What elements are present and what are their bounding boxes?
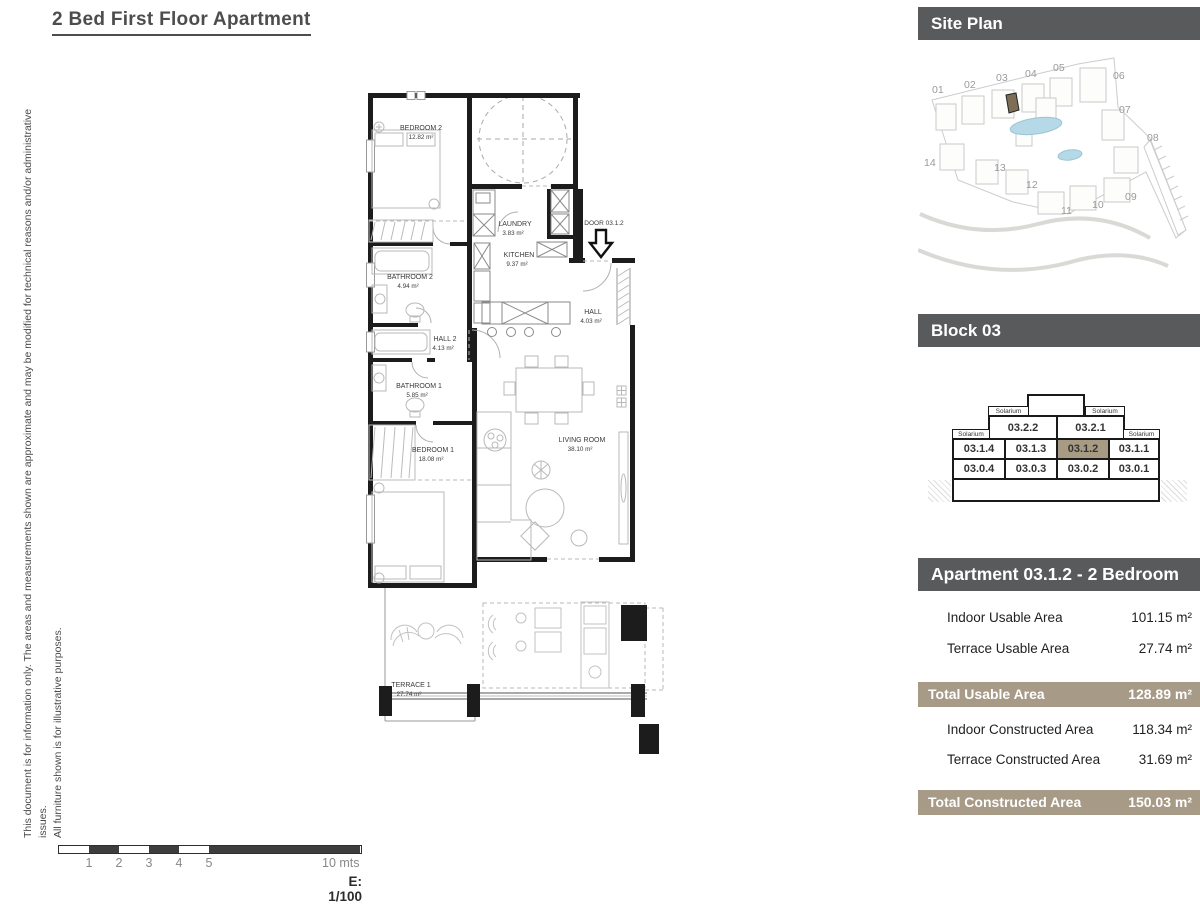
label-kitchen: KITCHEN xyxy=(504,252,535,259)
total-constructed-label: Total Constructed Area xyxy=(928,794,1081,810)
svg-text:07: 07 xyxy=(1119,104,1131,116)
walls xyxy=(368,93,635,588)
area-row-terrace-usable: Terrace Usable Area 27.74 m² xyxy=(918,641,1192,661)
block03-unit-0302: 03.0.2 xyxy=(1056,458,1110,480)
svg-text:38.10 m²: 38.10 m² xyxy=(568,446,593,453)
block03-unit-0313: 03.1.3 xyxy=(1004,438,1058,460)
scale-seg xyxy=(89,846,119,853)
scale-tick-2: 2 xyxy=(116,856,123,870)
total-usable-bar: 128.89 m² Total Usable Area xyxy=(918,682,1200,707)
block03-base xyxy=(952,478,1160,502)
disclaimer-line-1: This document is for information only. T… xyxy=(21,86,51,838)
site-plan-map: 01 02 03 04 05 06 07 08 09 10 11 12 13 1… xyxy=(918,52,1200,302)
label-hall2: HALL 2 xyxy=(433,336,456,343)
disclaimer-vertical-text: This document is for information only. T… xyxy=(21,86,67,838)
svg-text:03: 03 xyxy=(996,72,1008,84)
terrace-furniture xyxy=(391,602,609,688)
svg-text:18.08 m²: 18.08 m² xyxy=(419,456,444,463)
svg-text:05: 05 xyxy=(1053,62,1065,74)
svg-text:02: 02 xyxy=(964,79,976,91)
scale-tick-4: 4 xyxy=(176,856,183,870)
scale-tick-3: 3 xyxy=(146,856,153,870)
svg-text:08: 08 xyxy=(1147,132,1159,144)
ground-hatch-right xyxy=(1161,480,1187,502)
floor-plan: BEDROOM 2 12.82 m² LAUNDRY 3.83 m² KITCH… xyxy=(355,80,665,760)
ground-hatch-left xyxy=(928,480,951,502)
label-living-room: LIVING ROOM xyxy=(559,437,606,444)
area-label: Indoor Constructed Area xyxy=(947,722,1093,737)
area-label: Terrace Usable Area xyxy=(947,641,1069,656)
block03-unit-0322: 03.2.2 xyxy=(988,415,1058,440)
svg-text:04: 04 xyxy=(1025,68,1037,80)
block03-tower xyxy=(1027,394,1085,417)
apartment-header: Apartment 03.1.2 - 2 Bedroom xyxy=(918,558,1200,591)
svg-text:10: 10 xyxy=(1092,199,1104,211)
svg-text:11: 11 xyxy=(1061,205,1072,217)
svg-text:3.83 m²: 3.83 m² xyxy=(502,230,523,237)
svg-text:01: 01 xyxy=(932,84,944,96)
label-terrace1: TERRACE 1 xyxy=(391,682,430,689)
area-value: 31.69 m² xyxy=(1139,752,1192,767)
bedroom1-furniture xyxy=(372,483,444,583)
scale-seg xyxy=(149,846,179,853)
scale-end-label: 10 mts xyxy=(322,856,360,870)
block03-unit-0311: 03.1.1 xyxy=(1108,438,1160,460)
label-bedroom2: BEDROOM 2 xyxy=(400,125,442,132)
area-row-indoor-usable: Indoor Usable Area 101.15 m² xyxy=(918,610,1192,630)
site-roads xyxy=(918,214,1168,270)
shutter-hatch xyxy=(618,269,629,324)
page: 2 Bed First Floor Apartment This documen… xyxy=(0,0,1200,916)
label-laundry: LAUNDRY xyxy=(498,221,532,228)
total-constructed-value: 150.03 m² xyxy=(1128,790,1192,815)
block03-unit-0301: 03.0.1 xyxy=(1108,458,1160,480)
entrance-door-arrow-icon xyxy=(590,230,612,257)
svg-text:27.74 m²: 27.74 m² xyxy=(397,691,422,698)
svg-text:4.94 m²: 4.94 m² xyxy=(397,283,418,290)
svg-text:5.85 m²: 5.85 m² xyxy=(406,392,427,399)
svg-text:14: 14 xyxy=(924,157,936,169)
living-room-furniture xyxy=(477,356,628,560)
scale-tick-5: 5 xyxy=(206,856,213,870)
svg-text:12.82 m²: 12.82 m² xyxy=(409,134,434,141)
svg-text:9.37 m²: 9.37 m² xyxy=(506,261,527,268)
scale-bar xyxy=(58,845,362,854)
block03-unit-0321: 03.2.1 xyxy=(1056,415,1125,440)
area-label: Terrace Constructed Area xyxy=(947,752,1100,767)
block03-unit-0314: 03.1.4 xyxy=(952,438,1006,460)
site-plan-header: Site Plan xyxy=(918,7,1200,40)
block03-unit-0303: 03.0.3 xyxy=(1004,458,1058,480)
svg-text:12: 12 xyxy=(1026,179,1038,191)
total-usable-value: 128.89 m² xyxy=(1128,682,1192,707)
svg-text:4.03 m²: 4.03 m² xyxy=(580,318,601,325)
scale-seg xyxy=(209,846,360,853)
scale-seg xyxy=(179,846,209,853)
total-usable-label: Total Usable Area xyxy=(928,686,1045,702)
svg-text:4.13 m²: 4.13 m² xyxy=(432,345,453,352)
laundry-closets xyxy=(551,190,569,234)
area-row-terrace-constructed: Terrace Constructed Area 31.69 m² xyxy=(918,752,1192,772)
block03-header: Block 03 xyxy=(918,314,1200,347)
area-value: 27.74 m² xyxy=(1139,641,1192,656)
scale-seg xyxy=(119,846,149,853)
svg-text:09: 09 xyxy=(1125,191,1137,203)
label-bedroom1: BEDROOM 1 xyxy=(412,447,454,454)
block03-unit-0304: 03.0.4 xyxy=(952,458,1006,480)
area-row-indoor-constructed: Indoor Constructed Area 118.34 m² xyxy=(918,722,1192,742)
label-hall: HALL xyxy=(584,309,602,316)
label-door: DOOR 03.1.2 xyxy=(584,220,624,227)
disclaimer-line-2: All furniture shown is for illustrative … xyxy=(51,86,66,838)
laundry-appliances xyxy=(473,190,495,236)
total-constructed-bar: 150.03 m² Total Constructed Area xyxy=(918,790,1200,815)
block03-unit-0312-highlighted: 03.1.2 xyxy=(1056,438,1110,460)
area-label: Indoor Usable Area xyxy=(947,610,1063,625)
svg-text:13: 13 xyxy=(994,162,1006,174)
scale-seg xyxy=(59,846,89,853)
svg-text:06: 06 xyxy=(1113,70,1125,82)
scale-ratio: E: 1/100 xyxy=(312,874,362,904)
page-title: 2 Bed First Floor Apartment xyxy=(52,9,311,36)
label-bathroom2: BATHROOM 2 xyxy=(387,274,433,281)
label-bathroom1: BATHROOM 1 xyxy=(396,383,442,390)
area-value: 118.34 m² xyxy=(1132,722,1192,737)
wardrobes xyxy=(369,220,433,480)
bathroom1-fixtures xyxy=(372,330,430,417)
scale-tick-1: 1 xyxy=(86,856,93,870)
area-value: 101.15 m² xyxy=(1131,610,1192,625)
stairwell-void xyxy=(477,95,571,183)
